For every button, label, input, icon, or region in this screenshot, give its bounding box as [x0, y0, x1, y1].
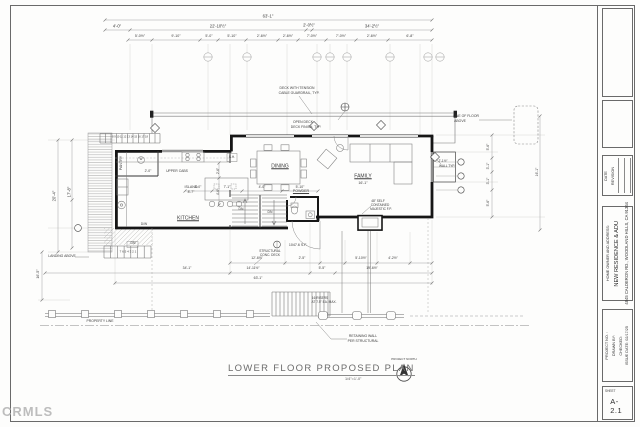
plan-label: MAJESTIC F.P. — [370, 208, 392, 212]
property-line-label: PROPERTY LINE — [86, 320, 113, 324]
plan-label: ABOVE — [454, 120, 466, 124]
plan-label: 14'-11½" — [246, 267, 259, 271]
sink-symbol — [118, 201, 126, 209]
checked-label: CHECKED: — [619, 336, 624, 356]
plan-label: 2'-6" — [217, 168, 221, 174]
plan-label: 22'-10½" — [210, 25, 227, 30]
project-north-label: PROJECT NORTH — [391, 357, 416, 361]
room-label-kitchen: KITCHEN — [177, 216, 199, 222]
plan-label: AT 7.5" EA. MAX. — [312, 301, 337, 305]
plan-label: 5'-0" — [205, 35, 212, 39]
drawing-title: LOWER FLOOR PROPOSED PLAN — [228, 363, 415, 376]
drawing-sheet: 63'-1"4'-0"22'-10½"2'-0½"34'-2½"5'-0½"9'… — [0, 0, 640, 427]
plan-label: CABLE GUARDRAIL, TYP. — [279, 92, 320, 96]
plan-label: 5'-10" — [227, 35, 236, 39]
plan-label: 8 9 10 11 12 13 14 15 16 17 18 — [112, 137, 148, 140]
titleblock-logo-box — [602, 8, 633, 97]
drawn-by-label: DRAWN BY: — [612, 335, 617, 356]
titleblock-project-box: PROJECT NO. : DRAWN BY: CHECKED: ISSUE D… — [602, 309, 633, 382]
room-label-powder: POWDER — [293, 190, 309, 194]
leader-lines — [75, 96, 512, 339]
revision-header: REVISION — [611, 166, 616, 184]
plan-label: 3'-0" — [195, 186, 202, 190]
revision-date-header: DATE — [604, 171, 609, 181]
owner-label: HOME OWNER AND ADDRESS: — [606, 225, 611, 281]
sheet-label: SHEET — [605, 389, 616, 393]
plan-label: 4'-0" — [259, 186, 266, 190]
room-label-dining: DINING — [271, 164, 289, 170]
plan-label: 7'-1" — [224, 186, 231, 190]
plan-label: 3'-1" — [487, 178, 491, 185]
project-no-label: PROJECT NO. : — [605, 332, 610, 360]
walls — [115, 135, 455, 230]
titleblock-sheet-box: SHEET A-2.1 — [602, 386, 633, 420]
plan-label: 5'-10½" — [355, 257, 366, 261]
plan-label: WALL TYP. — [439, 165, 455, 169]
plan-label: 7'-0½" — [307, 35, 317, 39]
issue-date-label: ISSUE DATE: 02/17/25 — [625, 326, 630, 365]
sheet-number: A-2.1 — [610, 397, 625, 415]
plan-label: 5'-10" — [296, 186, 305, 190]
plan-label: 2'-6½" — [367, 35, 377, 39]
toilet — [291, 206, 297, 214]
powder-sink — [306, 211, 315, 219]
plan-label: DECK FINISH, TYP. — [291, 126, 321, 130]
plan-label: 20'-4" — [53, 191, 58, 202]
plan-label: 5'-5" — [319, 267, 326, 271]
plan-label: 4'-6" — [217, 189, 221, 195]
plan-label: 2'-0½" — [303, 24, 315, 29]
plan-label: 7'-0½" — [336, 35, 346, 39]
plan-label: 12'-6½" — [251, 257, 262, 261]
room-label-pantry: PANTRY — [120, 156, 124, 170]
plan-label: W — [139, 158, 142, 162]
plan-label: 6'-8" — [406, 35, 413, 39]
plan-label: 2'-6½" — [257, 35, 267, 39]
extension-lines — [38, 44, 545, 300]
plan-label: 2'-5" — [299, 257, 306, 261]
plan-label: 2'-6½" — [283, 35, 293, 39]
titleblock-revision-table: DATE REVISION — [602, 155, 633, 196]
revision-table-line — [624, 158, 625, 193]
plan-label: DN — [239, 208, 244, 212]
plan-label: 16'-1" — [536, 168, 540, 177]
plan-label: 63'-1" — [263, 15, 274, 20]
plan-label: 3'-1" — [487, 163, 491, 170]
grid-bubbles — [204, 53, 444, 61]
plan-label: 5'-0½" — [135, 35, 145, 39]
plan-label: 17'-8" — [68, 187, 73, 198]
room-label-family: FAMILY — [354, 174, 371, 180]
plan-label: DN — [131, 242, 136, 246]
plan-label: 5'-6" — [487, 200, 491, 207]
sofa — [350, 144, 412, 162]
floor-above-outline — [514, 106, 538, 144]
plan-label: D/W — [141, 223, 147, 227]
plan-label: 2'-0" — [145, 170, 152, 174]
revision-table-line — [630, 158, 631, 193]
plan-label: 4'-0" — [113, 25, 121, 30]
plan-label: 16'-5" — [37, 269, 41, 278]
plan-label: 16'-1" — [358, 182, 367, 186]
plan-label: PER STRUCTURAL — [348, 340, 379, 344]
plan-label: 34'-2½" — [365, 25, 379, 30]
plan-label: 5'-6" — [487, 144, 491, 151]
revision-table-line — [618, 158, 619, 193]
plan-label: DN — [268, 211, 273, 215]
titleblock-stamp-box — [602, 100, 633, 148]
plan-label: 7 6 5 4 3 2 1 — [120, 250, 137, 253]
plan-label: 34'-1" — [183, 267, 192, 271]
stairs — [100, 134, 330, 317]
plan-label: UPPER CABS — [166, 170, 188, 174]
crmls-watermark: CRMLS — [2, 404, 53, 419]
plan-label: 8'-7" — [188, 191, 195, 195]
coffee-table — [317, 149, 337, 169]
area-label: 1047.6 S.F. — [289, 244, 307, 248]
drawing-scale: 1/4"=1'-0" — [345, 377, 361, 381]
titleblock-address-box: HOME OWNER AND ADDRESS: NEW RESIDENCE & … — [602, 206, 633, 301]
plan-label: 9'-10" — [171, 35, 180, 39]
plan-label: S.H. — [229, 156, 235, 160]
plan-label: 4'-2½" — [388, 257, 398, 261]
plan-label: 2'-1½" — [438, 160, 447, 164]
plan-label: 19'-6½" — [366, 267, 377, 271]
project-address: 4845 CALDERON RD., WOODLAND HILLS, CA 91… — [624, 202, 629, 305]
project-name: NEW RESIDENCE & ADU — [614, 221, 621, 287]
plan-label: CONC. DECK — [260, 254, 280, 258]
plan-label: 63'-1" — [254, 277, 263, 281]
landing-above-note: LANDING ABOVE — [48, 255, 76, 259]
